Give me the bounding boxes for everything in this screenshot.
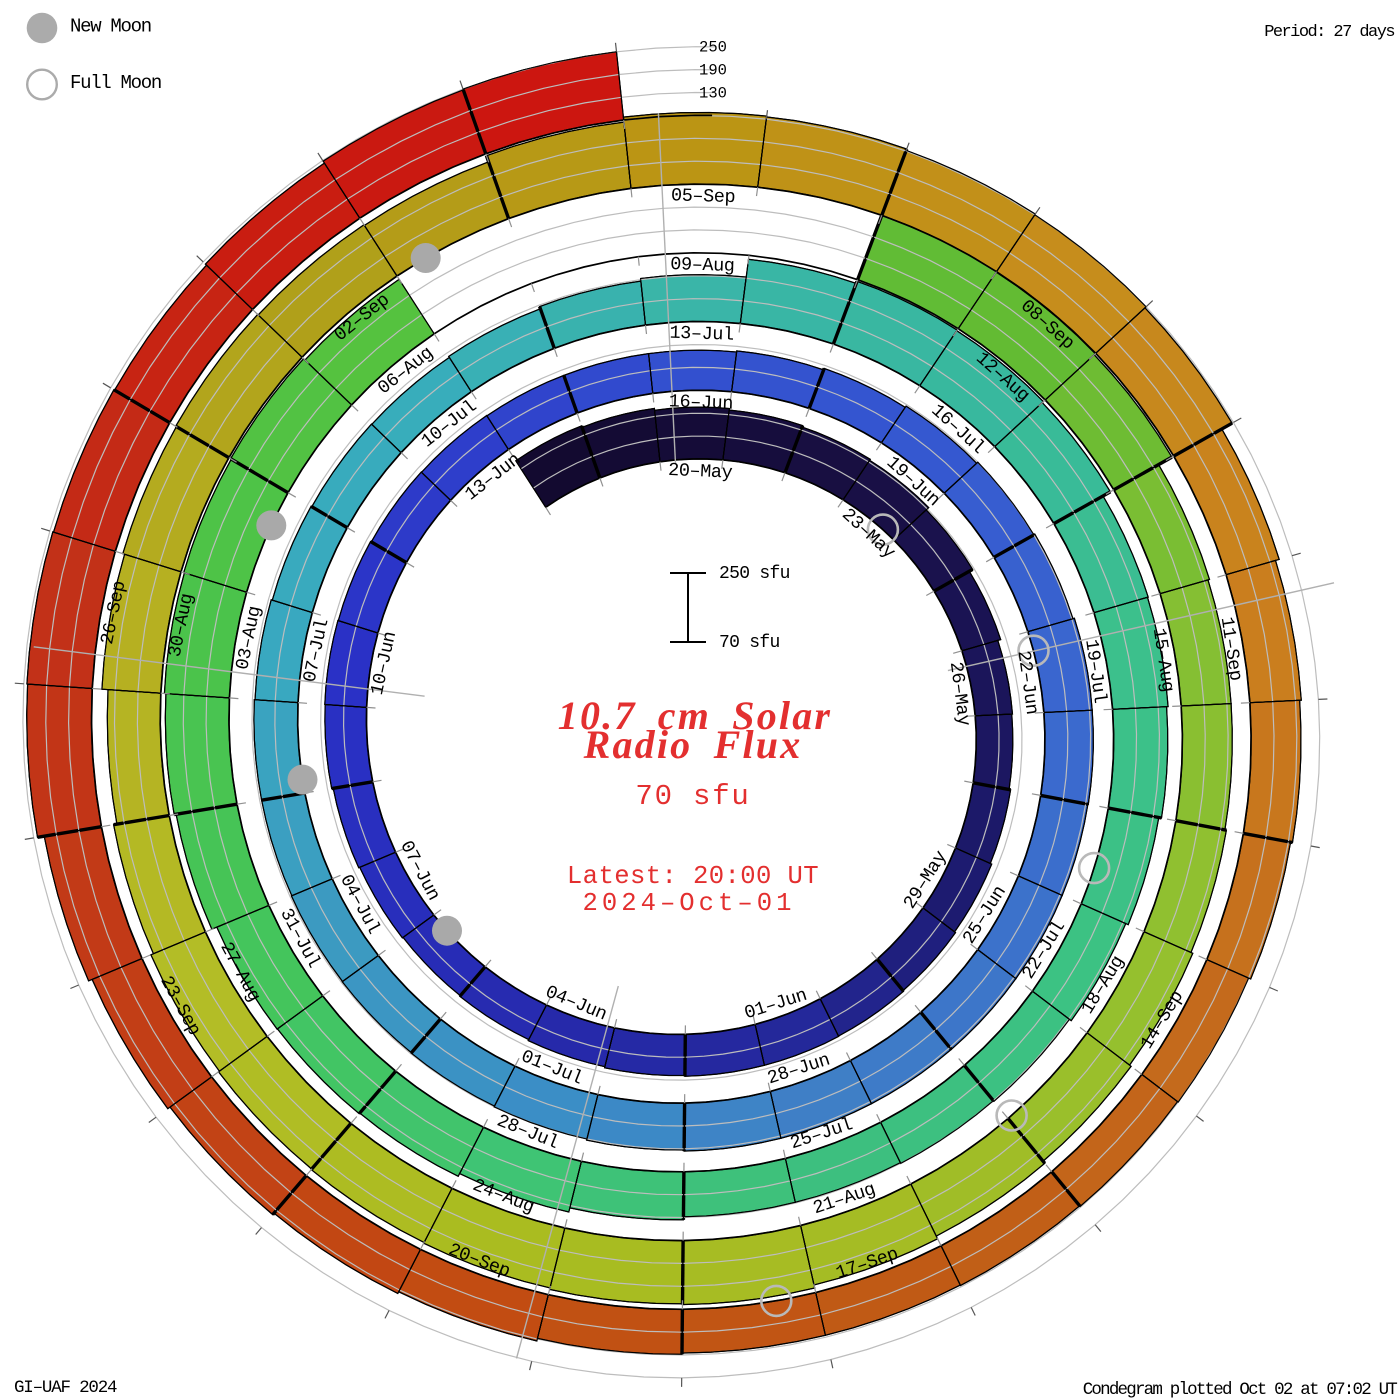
svg-text:Radio Flux: Radio Flux (583, 722, 803, 767)
svg-text:Period: 27 days: Period: 27 days (1264, 23, 1394, 42)
svg-text:Condegram plotted Oct 02 at 07: Condegram plotted Oct 02 at 07:02 UT (1083, 1380, 1398, 1400)
svg-text:130: 130 (699, 84, 727, 102)
svg-text:Latest: 20:00 UT: Latest: 20:00 UT (567, 862, 819, 891)
svg-text:16–Jun: 16–Jun (668, 391, 733, 414)
svg-text:190: 190 (699, 62, 727, 80)
svg-text:New Moon: New Moon (70, 16, 151, 38)
svg-text:250 sfu: 250 sfu (719, 564, 790, 584)
svg-text:09–Aug: 09–Aug (670, 254, 735, 277)
svg-text:250: 250 (699, 39, 727, 57)
svg-text:70 sfu: 70 sfu (719, 633, 780, 653)
svg-text:05–Sep: 05–Sep (671, 185, 736, 208)
svg-text:70 sfu: 70 sfu (635, 780, 750, 813)
svg-text:2024–Oct–01: 2024–Oct–01 (583, 889, 796, 918)
svg-text:GI–UAF 2024: GI–UAF 2024 (14, 1378, 117, 1398)
svg-text:20–May: 20–May (668, 460, 733, 484)
svg-text:13–Jul: 13–Jul (669, 323, 734, 346)
svg-text:Full Moon: Full Moon (70, 72, 161, 94)
